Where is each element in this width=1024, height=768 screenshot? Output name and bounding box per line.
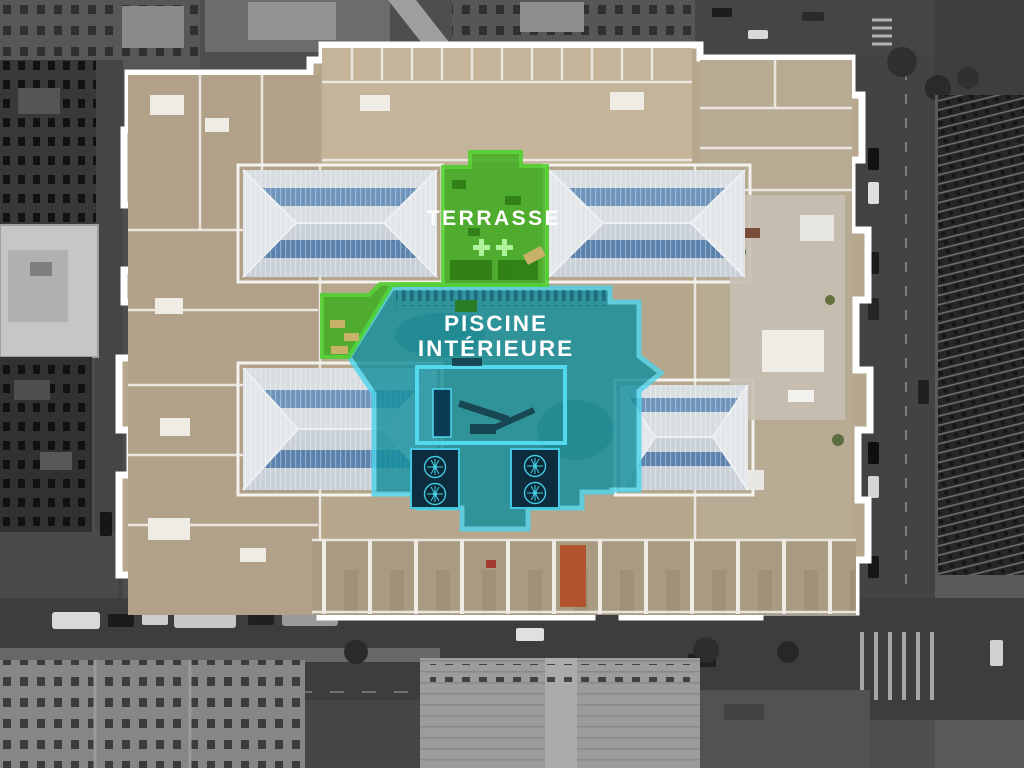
car (748, 30, 768, 39)
skylight-top-right (549, 170, 745, 277)
car (108, 614, 134, 627)
right-tower (935, 95, 1024, 575)
left-city-blocks (0, 60, 123, 602)
car (868, 182, 879, 204)
van (52, 612, 100, 629)
car (516, 628, 544, 641)
piscine-label-line2: INTÉRIEURE (418, 336, 574, 361)
sidewalk (0, 648, 440, 662)
skylight-top-left (243, 170, 437, 277)
aerial-photo: PISCINE INTÉRIEURE TERRASSE (0, 0, 1024, 768)
aerial-scene: PISCINE INTÉRIEURE TERRASSE (0, 0, 1024, 768)
tree (344, 640, 368, 664)
car (990, 640, 1003, 666)
pergola (762, 330, 824, 372)
car (868, 148, 879, 170)
car (802, 12, 824, 21)
orange-container (560, 545, 586, 607)
glass-edge-band (396, 290, 608, 306)
car (100, 512, 112, 536)
fan-unit-right (511, 449, 559, 508)
tree (777, 641, 799, 663)
tree (887, 47, 917, 77)
car (868, 476, 879, 498)
piscine-label-line1: PISCINE (444, 311, 548, 336)
tree (957, 67, 979, 89)
car (918, 380, 929, 404)
terrasse-label: TERRASSE (427, 207, 561, 230)
plant (832, 434, 844, 446)
car (712, 8, 732, 17)
car (868, 442, 879, 464)
lounger (788, 390, 814, 402)
lap-pool (433, 389, 451, 437)
plant (825, 295, 835, 305)
fan-unit-left (411, 449, 459, 508)
piscine-overlay: PISCINE INTÉRIEURE (349, 288, 661, 529)
